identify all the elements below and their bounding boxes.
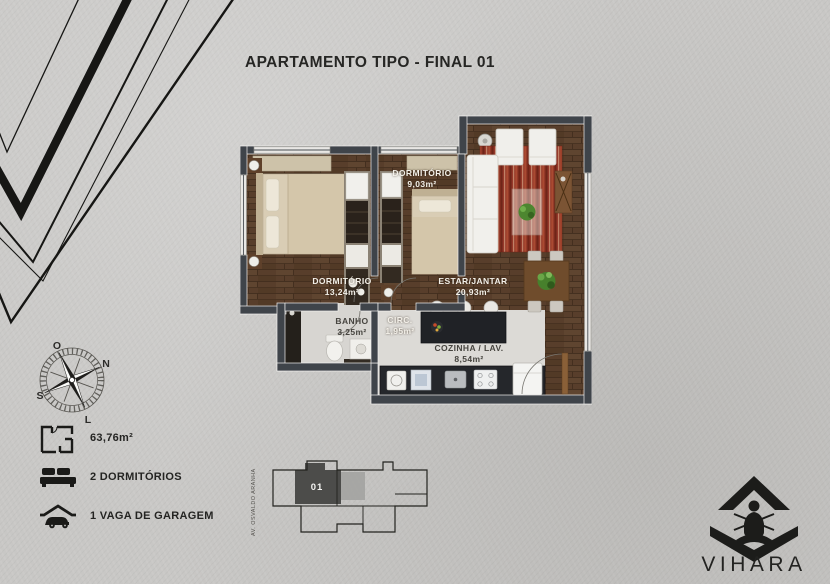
compass-west-label: O [53, 340, 61, 352]
room-label-cozinha: COZINHA / LAV. 8,54m² [420, 343, 518, 366]
compass-north-label: N [102, 358, 110, 370]
building-key-plan: AV. OSVALDO ARANHA 01 [243, 454, 443, 554]
brand-name: VIHARA [701, 553, 806, 574]
armchair [529, 129, 556, 165]
info-row-area: 63,76m² [40, 420, 260, 456]
chair [550, 251, 563, 262]
info-row-garage: 1 VAGA DE GARAGEM [40, 498, 260, 534]
side-table [555, 171, 572, 213]
fridge [513, 363, 542, 395]
info-bedrooms-label: 2 DORMITÓRIOS [90, 471, 182, 483]
pillow [266, 179, 279, 211]
garage-icon [40, 503, 80, 529]
vihara-logo: VIHARA [696, 468, 812, 574]
toilet [327, 341, 343, 361]
closet [253, 156, 331, 171]
compass-rose-icon: O N S L [26, 330, 118, 426]
compass-south-label: S [36, 390, 43, 402]
lamp [249, 161, 259, 171]
room-label-circ: CIRC. 1,95m² [376, 315, 424, 338]
floorplan-icon [40, 422, 80, 454]
room-label-dormitorio1: DORMITÓRIO 13,24m² [296, 276, 388, 299]
unit-number: 01 [311, 482, 324, 493]
room-label-estar-jantar: ESTAR/JANTAR 20,93m² [428, 276, 518, 299]
headboard [256, 173, 263, 255]
info-garage-label: 1 VAGA DE GARAGEM [90, 510, 214, 522]
info-area-label: 63,76m² [90, 432, 133, 444]
lamp [249, 257, 259, 267]
floor-plan [240, 113, 592, 408]
unit-info-list: 63,76m² 2 DORMITÓRIOS [40, 420, 260, 537]
page-title: APARTAMENTO TIPO - FINAL 01 [245, 54, 495, 72]
chair [528, 301, 541, 312]
pillow [266, 216, 279, 248]
stove [474, 370, 497, 389]
chair [550, 301, 563, 312]
room-label-dormitorio2: DORMITÓRIO 9,03m² [378, 168, 466, 191]
armchair [496, 129, 523, 165]
info-row-bedrooms: 2 DORMITÓRIOS [40, 459, 260, 495]
chevron-decoration [0, 0, 260, 345]
meditation-emblem-icon [710, 476, 798, 562]
entry-door-leaf [562, 353, 568, 394]
washer [387, 371, 406, 390]
street-label: AV. OSVALDO ARANHA [251, 468, 257, 536]
bed-icon [40, 467, 80, 487]
chair [528, 251, 541, 262]
plant [519, 204, 536, 221]
brochure-page: APARTAMENTO TIPO - FINAL 01 [0, 0, 830, 584]
pillow [419, 200, 451, 212]
sofa [467, 155, 498, 253]
adjacent-unit-footprint [341, 472, 365, 500]
